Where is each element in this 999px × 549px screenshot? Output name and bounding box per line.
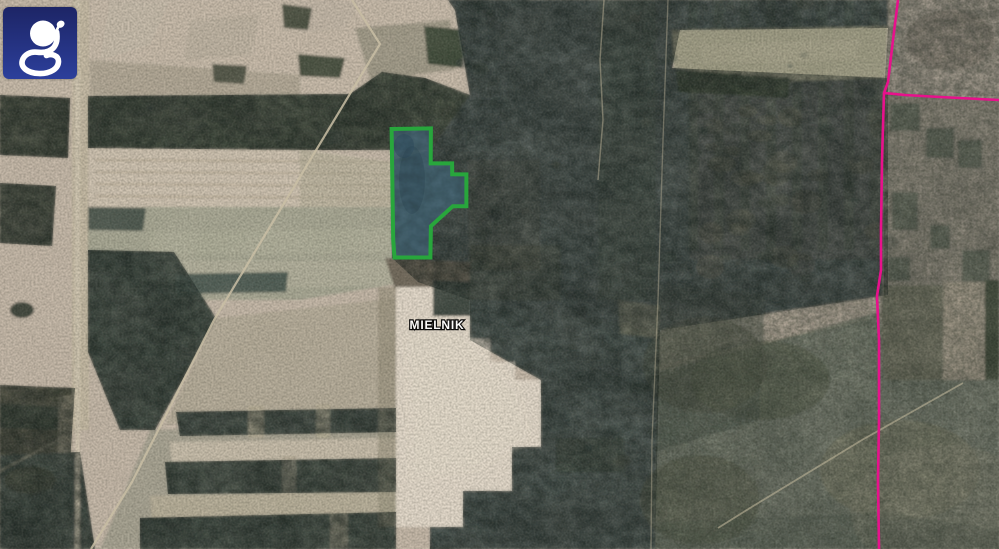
svg-text:MIELNIK: MIELNIK: [410, 318, 465, 332]
